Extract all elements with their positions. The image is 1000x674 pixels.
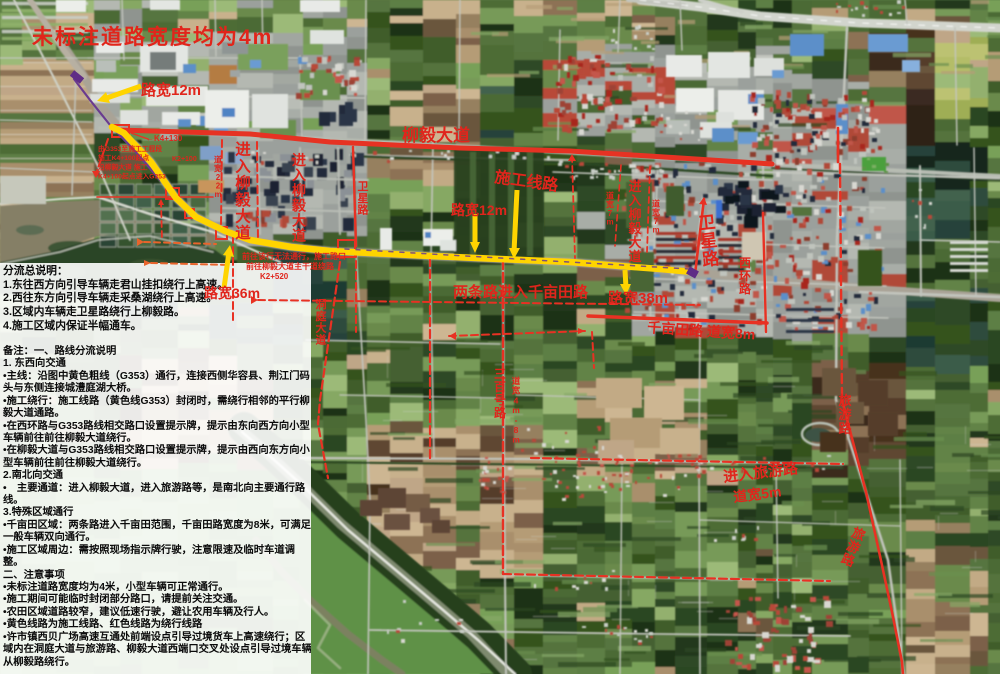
svg-text:进入柳毅大道: 进入柳毅大道	[627, 179, 642, 264]
svg-text:旅游路: 旅游路	[838, 393, 852, 436]
svg-text:卫星路: 卫星路	[697, 212, 721, 269]
svg-text:道宽7m: 道宽7m	[651, 199, 660, 235]
svg-text:←K4+130: ←K4+130	[146, 134, 183, 143]
svg-text:道宽4m-8m: 道宽4m-8m	[511, 376, 521, 445]
svg-text:路宽36m: 路宽36m	[204, 285, 260, 301]
svg-text:道宽5m: 道宽5m	[732, 483, 782, 505]
svg-text:路宽38m: 路宽38m	[608, 289, 668, 307]
svg-text:西环路: 西环路	[739, 256, 752, 296]
svg-text:两条路进入千亩田路: 两条路进入千亩田路	[453, 283, 589, 301]
svg-text:进入柳毅大道: 进入柳毅大道	[234, 141, 251, 243]
svg-text:进入柳毅大道: 进入柳毅大道	[291, 152, 307, 244]
svg-text:K4+100起点进入G353: K4+100起点进入G353	[98, 172, 166, 181]
svg-text:旅游路: 旅游路	[839, 525, 868, 570]
svg-text:路宽12m: 路宽12m	[451, 202, 507, 218]
svg-text:三百号路: 三百号路	[494, 367, 507, 420]
svg-text:K2+520: K2+520	[260, 272, 289, 281]
svg-text:由G353至施工工程段: 由G353至施工工程段	[98, 144, 162, 153]
svg-text:前往柳毅大道主干道绕路: 前往柳毅大道主干道绕路	[246, 261, 335, 271]
svg-text:路宽12m: 路宽12m	[141, 81, 201, 99]
svg-text:卫星路: 卫星路	[358, 180, 370, 217]
svg-text:柳毅大道: 柳毅大道	[402, 125, 470, 145]
svg-text:道宽7m: 道宽7m	[605, 191, 614, 227]
svg-text:洞庭大道: 洞庭大道	[316, 297, 327, 347]
svg-text:施工线路: 施工线路	[493, 167, 560, 195]
svg-text:K2+100: K2+100	[172, 156, 197, 163]
svg-text:沿柳毅大道 施工: 沿柳毅大道 施工	[98, 162, 148, 171]
svg-text:施工K4+100起点: 施工K4+100起点	[98, 153, 149, 162]
svg-text:前往该行无法通行，施工路口: 前往该行无法通行，施工路口	[242, 251, 346, 261]
